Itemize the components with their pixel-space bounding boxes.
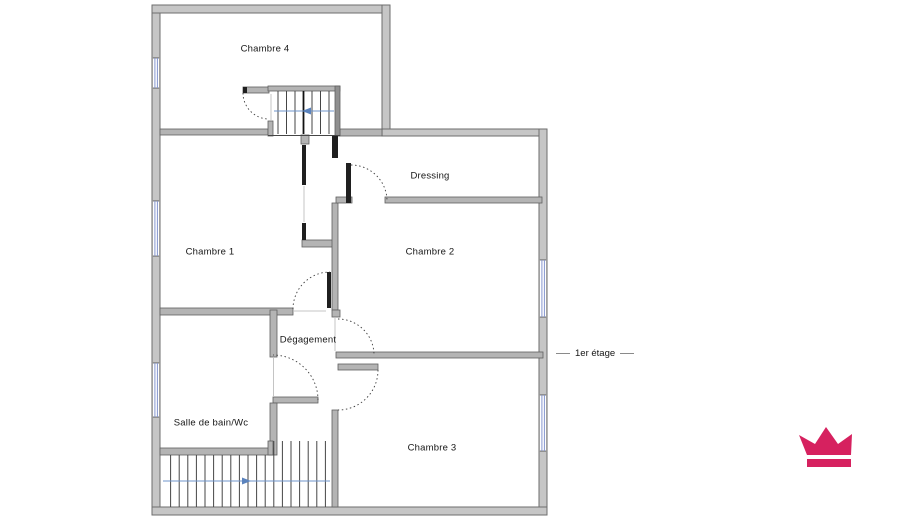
window-right-chambre2 — [540, 259, 546, 318]
room-label-chambre2: Chambre 2 — [406, 247, 455, 258]
window-left-chambre4 — [153, 57, 159, 89]
window-left-chambre1 — [153, 200, 159, 257]
room-label-degagement: Dégagement — [280, 335, 336, 346]
door-arc-chambre1 — [293, 272, 330, 309]
stair-direction-arrow-right — [242, 478, 251, 485]
floor-level-text: 1er étage — [575, 348, 615, 359]
interior-walls — [160, 86, 543, 507]
floor-level-label: 1er étage — [556, 347, 634, 360]
room-label-dressing: Dressing — [410, 171, 449, 182]
door-arc-chambre2 — [338, 319, 374, 355]
window-right-chambre3 — [540, 394, 546, 452]
window-left-salle-de-bain — [153, 362, 159, 418]
crown-icon — [799, 427, 852, 467]
door-swing-arcs — [243, 93, 387, 410]
label-dash-right — [620, 353, 634, 354]
room-label-salle-de-bain: Salle de bain/Wc — [174, 418, 249, 429]
room-label-chambre4: Chambre 4 — [241, 44, 290, 55]
upper-staircase — [268, 91, 340, 136]
door-arc-dressing — [351, 165, 387, 201]
room-label-chambre3: Chambre 3 — [408, 443, 457, 454]
floor-plan-canvas: Chambre 4 Chambre 1 Dressing Chambre 2 D… — [0, 0, 897, 523]
door-arc-salle-de-bain — [273, 355, 318, 400]
exterior-walls — [152, 5, 547, 515]
room-label-chambre1: Chambre 1 — [186, 247, 235, 258]
label-dash-left — [556, 353, 570, 354]
door-arc-chambre4-stairs — [243, 93, 269, 119]
door-arc-chambre3 — [338, 370, 378, 410]
